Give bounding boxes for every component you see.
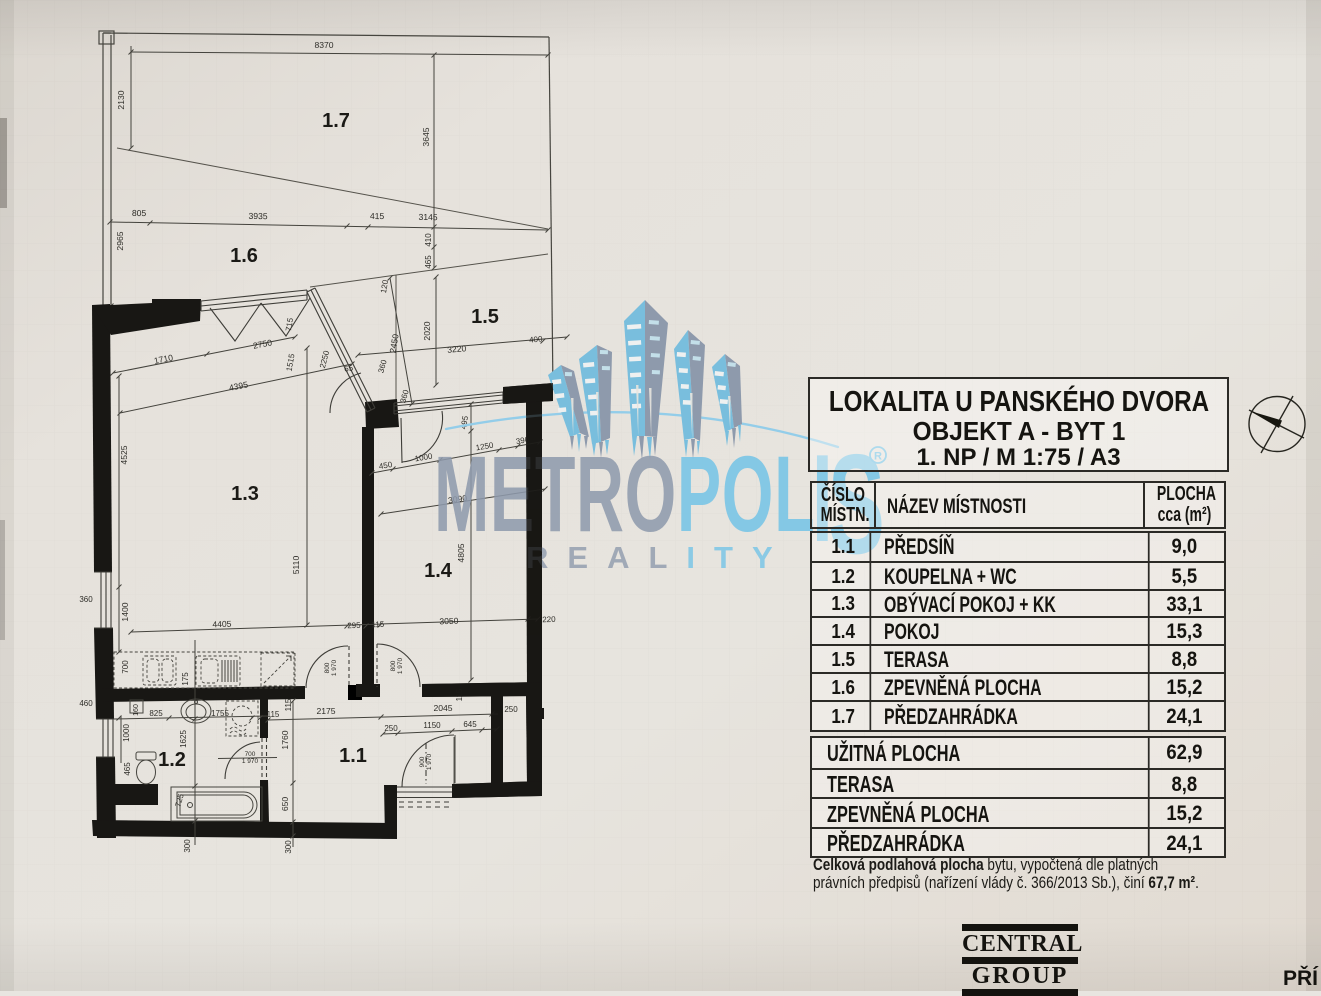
svg-text:465: 465 <box>424 255 433 269</box>
svg-text:300: 300 <box>183 839 192 853</box>
svg-text:250: 250 <box>504 705 518 714</box>
svg-text:1400: 1400 <box>120 602 130 621</box>
svg-text:1.3: 1.3 <box>231 483 259 505</box>
svg-text:805: 805 <box>132 208 147 218</box>
svg-text:825: 825 <box>149 709 163 718</box>
svg-text:2020: 2020 <box>422 321 432 340</box>
svg-text:1 970: 1 970 <box>242 758 259 765</box>
svg-text:800: 800 <box>324 662 331 673</box>
svg-text:REALITY: REALITY <box>526 540 792 575</box>
svg-text:2045: 2045 <box>433 703 452 713</box>
svg-text:1.6: 1.6 <box>230 245 258 267</box>
svg-text:115: 115 <box>371 620 385 629</box>
svg-text:1755: 1755 <box>211 709 229 718</box>
svg-text:1000: 1000 <box>122 724 131 742</box>
svg-text:3935: 3935 <box>248 211 268 221</box>
svg-text:295: 295 <box>347 621 361 630</box>
svg-text:1 970: 1 970 <box>331 659 338 676</box>
svg-text:1.1: 1.1 <box>339 745 367 767</box>
svg-text:1.4: 1.4 <box>424 560 453 582</box>
svg-text:460: 460 <box>79 699 93 708</box>
svg-text:360: 360 <box>79 595 93 604</box>
svg-text:415: 415 <box>370 211 385 221</box>
svg-text:410: 410 <box>424 233 433 247</box>
svg-text:300: 300 <box>284 840 293 854</box>
svg-text:1.7: 1.7 <box>322 110 350 132</box>
svg-text:700: 700 <box>245 751 256 758</box>
svg-text:115: 115 <box>267 710 280 719</box>
svg-text:1.5: 1.5 <box>471 306 499 328</box>
svg-text:2965: 2965 <box>115 231 125 250</box>
svg-text:1625: 1625 <box>179 730 188 748</box>
svg-text:1760: 1760 <box>280 730 290 749</box>
svg-text:3645: 3645 <box>421 127 431 146</box>
svg-text:METROPOL: METROPOL <box>434 433 815 553</box>
svg-text:3145: 3145 <box>418 212 438 222</box>
svg-text:700: 700 <box>121 660 130 674</box>
svg-text:250: 250 <box>384 724 398 733</box>
svg-text:160: 160 <box>133 704 140 716</box>
svg-text:1 970: 1 970 <box>397 657 404 674</box>
svg-text:3220: 3220 <box>447 343 467 355</box>
svg-text:3050: 3050 <box>439 616 459 627</box>
svg-text:1150: 1150 <box>423 721 441 730</box>
svg-text:1.2: 1.2 <box>158 749 186 771</box>
svg-text:1 970: 1 970 <box>426 753 433 770</box>
svg-text:175: 175 <box>181 672 190 686</box>
svg-text:8370: 8370 <box>314 40 333 50</box>
svg-text:465: 465 <box>123 762 132 776</box>
svg-text:650: 650 <box>280 797 290 812</box>
svg-text:800: 800 <box>390 660 397 671</box>
svg-text:645: 645 <box>463 720 477 729</box>
svg-text:220: 220 <box>542 615 556 624</box>
svg-text:4525: 4525 <box>119 445 129 464</box>
svg-text:5110: 5110 <box>291 556 301 575</box>
svg-text:4405: 4405 <box>212 619 232 630</box>
svg-text:2175: 2175 <box>316 706 335 716</box>
svg-text:400: 400 <box>529 334 544 344</box>
svg-text:900: 900 <box>419 756 426 767</box>
svg-text:115: 115 <box>284 698 293 711</box>
svg-text:2130: 2130 <box>116 90 126 109</box>
